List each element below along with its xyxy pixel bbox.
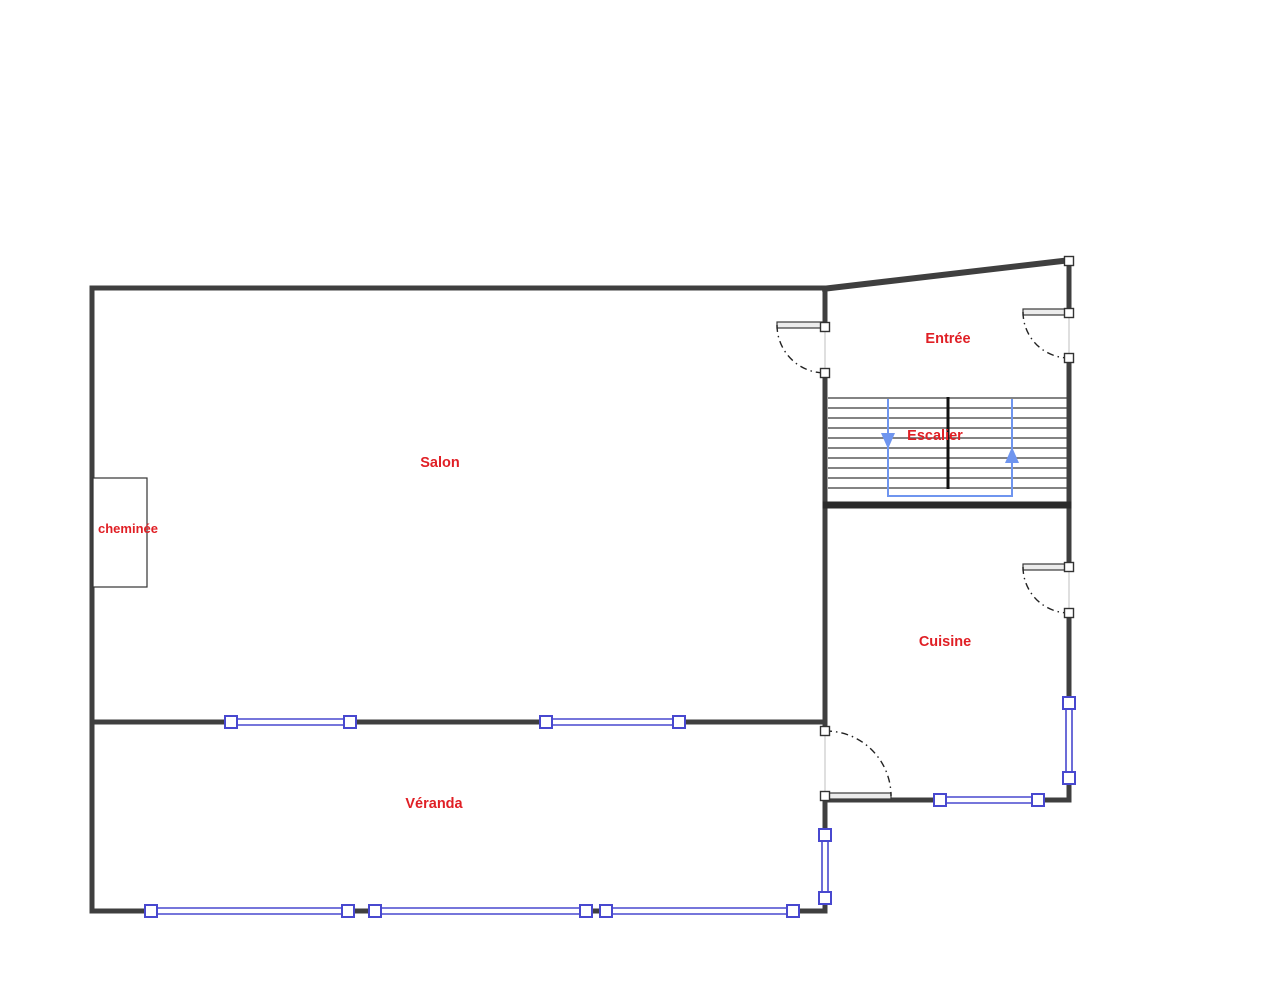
room-label-veranda: Véranda — [405, 796, 463, 812]
floor-plan-canvas: Salon cheminée Entrée Escalier Cuisine V… — [0, 0, 1266, 1008]
door-salon-entree — [777, 322, 830, 378]
door-handle-square — [821, 792, 830, 801]
window-endpoint — [580, 905, 592, 917]
window-endpoint — [1063, 772, 1075, 784]
interior-walls — [90, 286, 1072, 732]
door-handle-square — [1065, 309, 1074, 318]
window-cuisine-right — [1063, 697, 1075, 784]
window-midwall-1 — [225, 716, 356, 728]
window-endpoint — [1032, 794, 1044, 806]
door-swing-arc — [825, 731, 891, 796]
window-endpoint — [540, 716, 552, 728]
window-midwall-2 — [540, 716, 685, 728]
room-label-salon: Salon — [420, 455, 459, 471]
room-label-escalier: Escalier — [907, 428, 963, 444]
window-endpoint — [787, 905, 799, 917]
door-leaf — [1023, 564, 1069, 570]
door-handle-square — [1065, 563, 1074, 572]
door-handle-square — [821, 727, 830, 736]
window-cuisine-bottom — [934, 794, 1044, 806]
window-bottom-1 — [145, 905, 354, 917]
door-handle-square — [1065, 609, 1074, 618]
door-handle-square — [821, 323, 830, 332]
room-label-cuisine: Cuisine — [919, 634, 971, 650]
window-endpoint — [934, 794, 946, 806]
door-handle-square — [821, 369, 830, 378]
door-entree-entry — [1023, 257, 1074, 363]
window-endpoint — [600, 905, 612, 917]
stair-arrow-up-icon — [1005, 447, 1019, 463]
door-leaf — [825, 793, 891, 799]
window-endpoint — [819, 892, 831, 904]
door-cuisine — [1023, 563, 1074, 618]
window-veranda-right — [819, 829, 831, 904]
floor-plan-page: Salon cheminée Entrée Escalier Cuisine V… — [0, 0, 1266, 1008]
wall-top-entree-angled — [822, 260, 1071, 289]
staircase — [828, 397, 1067, 496]
window-endpoint — [145, 905, 157, 917]
door-handle-square — [1065, 257, 1074, 266]
door-handle-square — [1065, 354, 1074, 363]
door-veranda-cuisine — [821, 727, 892, 801]
door-swing-arc — [777, 325, 825, 373]
room-label-cheminee: cheminée — [98, 521, 158, 536]
stair-arrow-down-icon — [881, 433, 895, 449]
windows — [145, 697, 1075, 917]
window-bottom-3 — [600, 905, 799, 917]
door-leaf — [777, 322, 825, 328]
door-swing-arc — [1023, 567, 1069, 613]
exterior-walls — [90, 258, 1072, 914]
window-endpoint — [673, 716, 685, 728]
door-swing-arc — [1023, 312, 1069, 358]
window-endpoint — [369, 905, 381, 917]
room-label-entree: Entrée — [925, 331, 970, 347]
window-endpoint — [1063, 697, 1075, 709]
window-endpoint — [225, 716, 237, 728]
window-endpoint — [344, 716, 356, 728]
door-leaf — [1023, 309, 1069, 315]
window-endpoint — [819, 829, 831, 841]
window-bottom-2 — [369, 905, 592, 917]
window-endpoint — [342, 905, 354, 917]
